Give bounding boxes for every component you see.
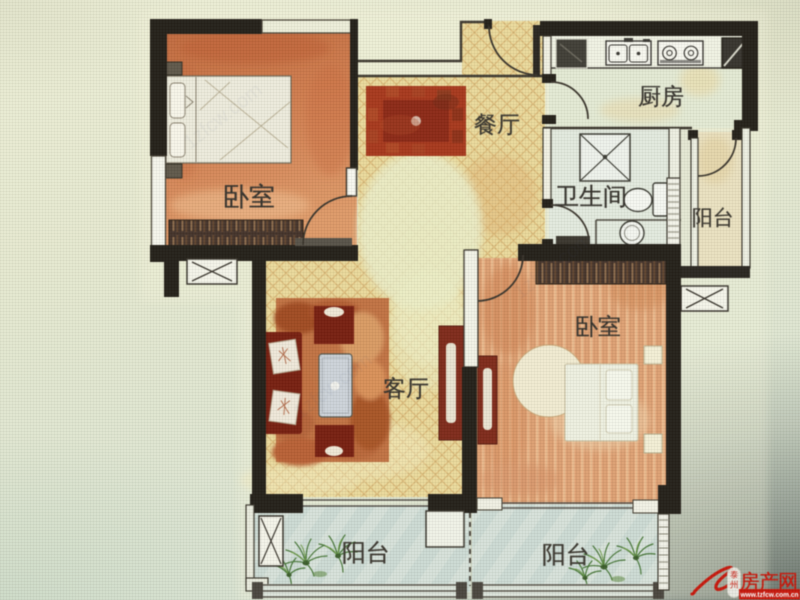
svg-text:www.tzfcw.com.cn: www.tzfcw.com.cn [740, 590, 799, 599]
